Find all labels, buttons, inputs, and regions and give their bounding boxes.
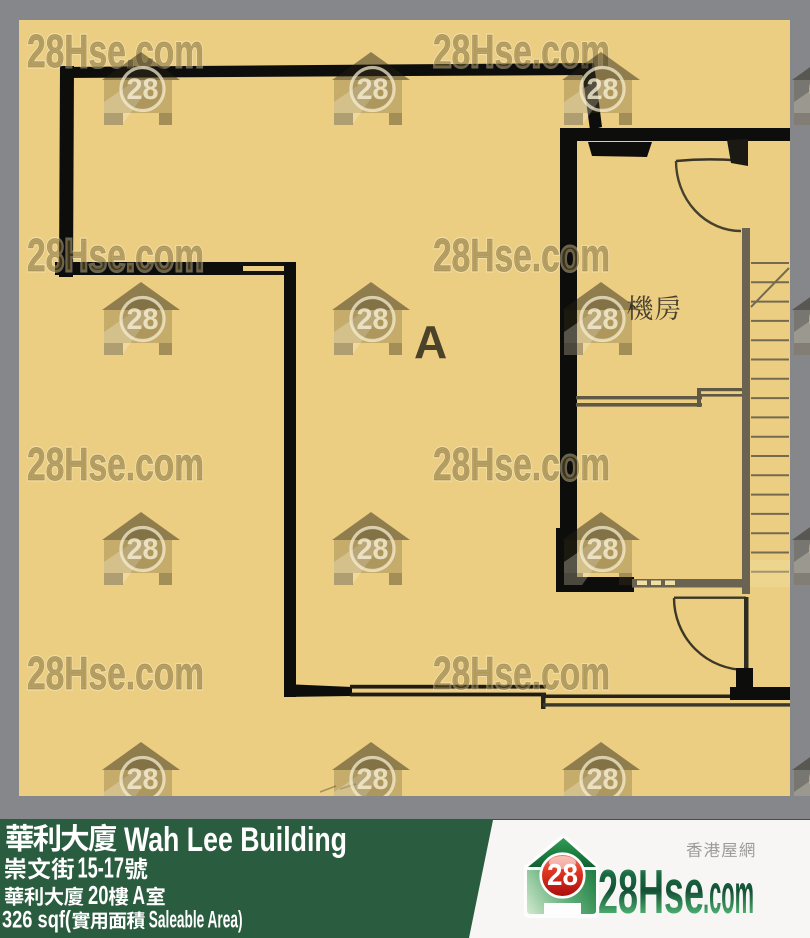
svg-text:28Hse.com: 28Hse.com [433,647,610,699]
svg-text:28Hse.com: 28Hse.com [27,438,204,490]
svg-text:Wah Lee Building: Wah Lee Building [124,821,347,859]
svg-text:28: 28 [587,533,619,566]
svg-text:A: A [133,880,146,910]
svg-text:Saleable Area): Saleable Area) [145,907,243,934]
svg-text:28Hse.com: 28Hse.com [27,647,204,699]
svg-text:28: 28 [547,857,578,892]
svg-text:28Hse.com: 28Hse.com [27,25,204,77]
svg-text:28: 28 [587,303,619,336]
svg-text:28: 28 [357,533,389,566]
svg-text:A: A [414,316,447,368]
svg-text:28Hse.com: 28Hse.com [27,229,204,281]
svg-text:20: 20 [88,880,109,910]
svg-text:28: 28 [357,763,389,796]
svg-text:28: 28 [127,763,159,796]
svg-text:28: 28 [127,533,159,566]
svg-text:28Hse: 28Hse [598,858,704,927]
svg-text:28: 28 [127,73,159,106]
svg-text:28: 28 [587,73,619,106]
svg-text:.com: .com [703,862,754,925]
svg-text:28Hse.com: 28Hse.com [433,229,610,281]
svg-text:28Hse.com: 28Hse.com [433,438,610,490]
svg-text:28: 28 [357,303,389,336]
svg-text:28: 28 [357,73,389,106]
svg-text:28: 28 [127,303,159,336]
svg-text:28: 28 [587,763,619,796]
svg-text:326 sqf(: 326 sqf( [2,907,71,934]
